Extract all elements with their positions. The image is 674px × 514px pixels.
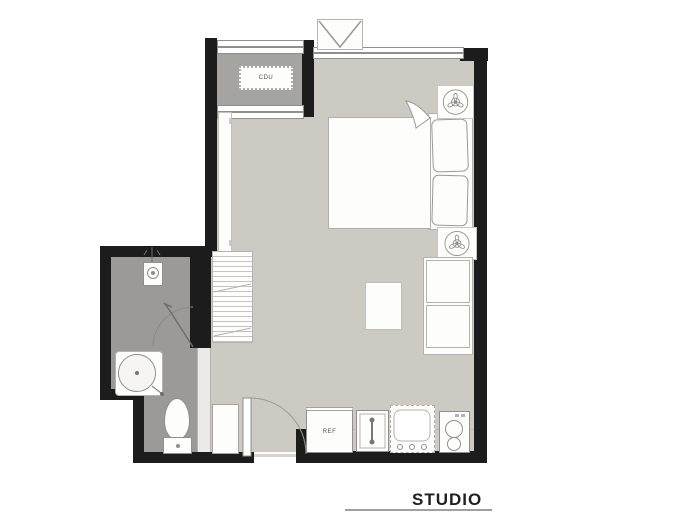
bathroom-doorway (197, 348, 211, 452)
counter-appliance (390, 405, 435, 453)
wardrobe-door (426, 260, 470, 303)
wall-balcony-left (205, 38, 217, 257)
toilet-flush-dot (176, 444, 180, 448)
fan-icon (437, 227, 477, 260)
bed-mattress (328, 117, 431, 229)
tall-cabinet (218, 112, 232, 252)
refrigerator-label: REF (307, 411, 352, 452)
wash-basin-pedestal (115, 351, 163, 396)
cdu-unit: CDU (239, 66, 293, 90)
title-underline (345, 509, 492, 511)
stove (439, 411, 470, 453)
wardrobe-door (426, 305, 470, 348)
wall-bath-right (190, 252, 211, 348)
shoe-cabinet (212, 404, 239, 454)
awning-window-icon (317, 19, 363, 50)
floor-plan: CDU REF (0, 0, 674, 514)
kitchen-sink (356, 410, 389, 452)
fan-icon (437, 85, 474, 119)
window-balcony-top (217, 40, 304, 54)
cdu-label: CDU (241, 68, 291, 88)
shower-rose-dot (151, 271, 155, 275)
toilet-bowl (164, 398, 190, 440)
wash-basin-drain (135, 371, 139, 375)
louver-closet (212, 251, 253, 343)
refrigerator: REF (306, 407, 353, 453)
wall-bath-left (100, 246, 111, 398)
pillow (431, 118, 469, 172)
table (365, 282, 402, 330)
shower-head-icon (143, 262, 163, 286)
entry-threshold (254, 454, 296, 457)
pillow (431, 175, 468, 227)
plan-title: STUDIO (412, 490, 482, 510)
wardrobe (423, 257, 473, 355)
toilet-tank (163, 437, 192, 454)
